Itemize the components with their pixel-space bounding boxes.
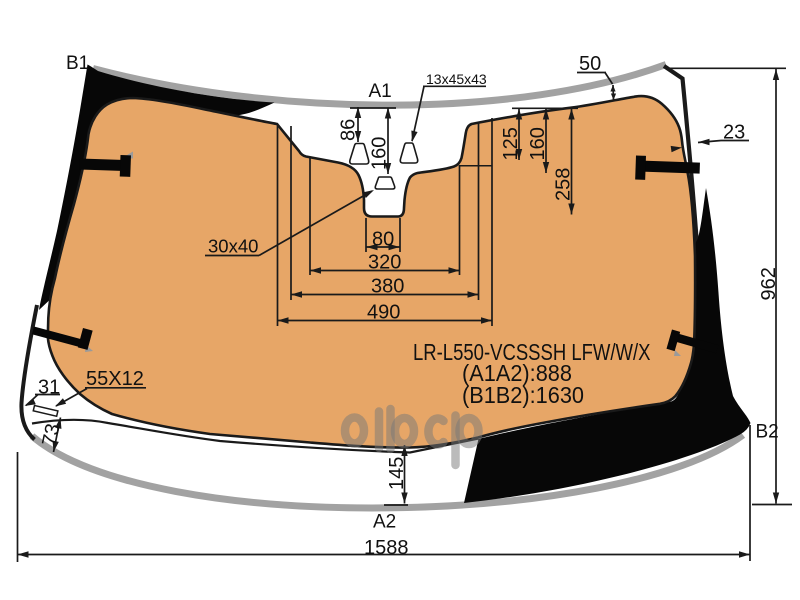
svg-text:A1: A1 [369,81,392,102]
svg-text:80: 80 [372,229,394,251]
svg-text:490: 490 [367,302,400,324]
svg-text:55X12: 55X12 [86,368,144,390]
svg-text:962: 962 [758,267,780,300]
svg-text:23: 23 [723,122,745,144]
svg-text:160: 160 [369,137,391,170]
svg-text:B1: B1 [66,53,89,74]
svg-text:145: 145 [386,457,408,490]
svg-text:1588: 1588 [364,537,409,559]
svg-text:125: 125 [500,127,522,160]
svg-text:258: 258 [553,168,575,201]
svg-text:50: 50 [579,53,601,75]
svg-text:380: 380 [371,276,404,298]
svg-text:B2: B2 [756,422,779,443]
svg-text:160: 160 [527,127,549,160]
svg-text:73: 73 [38,422,64,448]
svg-text:320: 320 [368,252,401,274]
svg-text:13x45x43: 13x45x43 [426,71,487,87]
svg-text:86: 86 [338,119,360,141]
svg-text:(B1B2):1630: (B1B2):1630 [462,382,584,408]
svg-text:30x40: 30x40 [208,236,258,257]
svg-text:A2: A2 [373,512,396,533]
